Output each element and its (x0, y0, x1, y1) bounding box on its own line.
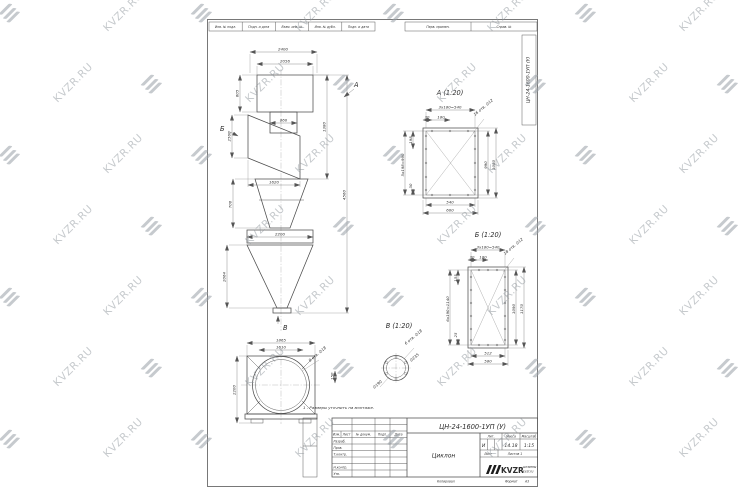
kvzr-watermark-text: KVZR.RU (101, 132, 145, 176)
view-v-dim-190: ∅190 (371, 379, 383, 390)
title-block: Изм. Лист № докум. Подп. Дата Разраб. Пр… (303, 418, 538, 483)
tb-sheets-label: Листов 1 (507, 452, 523, 456)
front-view-arrows: Б А В (220, 81, 359, 332)
kvzr-watermark-text: KVZR.RU (51, 203, 95, 247)
view-b-dim-25: 25 (453, 332, 458, 337)
tb-sheet-label: Лист (483, 452, 492, 456)
strip-cell-5: Подп. и дата (348, 25, 369, 29)
tb-format-label: Формат (505, 479, 518, 483)
kvzr-logo: KVZR (486, 465, 524, 475)
view-b-dim-155: 155 (453, 274, 458, 282)
view-a-dim-198: 198 (408, 136, 413, 144)
strip-cell-3: Взам. инв. № (281, 25, 302, 29)
strip-cell-4: Инв. № дубл. (315, 25, 336, 29)
kvzr-watermark-text: KVZR.RU (51, 345, 95, 389)
kvzr-watermark-logo (575, 3, 596, 24)
view-b-dim-512: 512 (484, 351, 492, 356)
cyclone-front-view (247, 69, 313, 331)
kvzr-watermark-text: KVZR.RU (677, 0, 721, 34)
tb-part-name: Циклон (432, 453, 456, 460)
dim-150: 150 (330, 372, 335, 380)
kvzr-watermark-logo (717, 216, 738, 237)
dim-2056: 2056 (280, 59, 290, 64)
kvzr-watermark-logo (575, 429, 596, 450)
tb-lit-value: И (482, 443, 486, 449)
tb-scale-label: Масштаб (522, 434, 537, 438)
kvzr-logo-text: KVZR (501, 466, 524, 475)
view-v-dim-235: ∅235 (408, 352, 420, 363)
view-a-dim-600: 600 (446, 208, 454, 213)
kvzr-watermark-logo (0, 287, 20, 308)
view-b-dim-left: 6х190=1140 (445, 296, 450, 322)
kvzr-watermark-logo (0, 145, 20, 166)
view-a-dim-top: 3х180=540 (439, 105, 462, 110)
tb-header-izm: Изм. (333, 433, 340, 437)
logo-caption-1: штампы (523, 465, 537, 469)
kvzr-watermark-text: KVZR.RU (101, 416, 145, 460)
view-a-dim-30l: 30 (408, 183, 413, 188)
tb-header-data: Дата (393, 433, 402, 437)
strip-cell-6: Перв. примен. (426, 25, 449, 29)
kvzr-watermark-text: KVZR.RU (627, 61, 671, 105)
logo-caption-2: kvzr.ru (523, 470, 533, 474)
view-b: Б (1:20) 3х180=540 30 180 18 отв. ∅12 10… (445, 231, 526, 366)
dim-2560: 2560 (227, 131, 232, 141)
strip-cell-1: Инв. № подл. (215, 25, 236, 29)
dim-2064: 2064 (222, 272, 227, 282)
tb-doc-number: ЦН-24-1600-1УП (У) (439, 423, 506, 431)
tb-copied-label: Копировал (437, 479, 455, 483)
tb-scale-value: 1:15 (524, 443, 534, 449)
kvzr-watermark-text: KVZR.RU (627, 203, 671, 247)
kvzr-watermark-logo (717, 358, 738, 379)
front-view-dimensions: 2400 2056 605 1380 860 2560 1620 700 220… (222, 47, 350, 314)
view-a-dim-540: 540 (446, 200, 454, 205)
side-doc-label: ЦН-24-1600-1УП (У) (522, 35, 536, 125)
dim-1380: 1380 (322, 122, 327, 132)
kvzr-watermark-logo (0, 429, 20, 450)
view-arrow-b-label: Б (220, 125, 225, 133)
drawing-note: 1 - Размеры уточнить на монтаже. (303, 405, 374, 410)
kvzr-watermark-text: KVZR.RU (627, 345, 671, 389)
kvzr-watermark-text: KVZR.RU (677, 416, 721, 460)
tb-row-razrab: Разраб. (334, 440, 346, 444)
tb-header-doc: № докум. (355, 433, 371, 437)
tb-lit-label: Лит. (486, 434, 494, 438)
tb-row-prov: Пров. (334, 446, 343, 450)
tb-row-utv: Утв. (334, 472, 341, 476)
dim-860: 860 (280, 118, 288, 123)
kvzr-watermark-text: KVZR.RU (677, 132, 721, 176)
dim-700: 700 (228, 200, 233, 208)
strip-cell-7: Справ. № (496, 25, 511, 29)
view-b-dim-580: 580 (484, 359, 492, 364)
kvzr-watermark-text: KVZR.RU (101, 274, 145, 318)
view-b-holes-callout: 18 отв. ∅12 (502, 236, 524, 256)
view-arrow-a-label: А (353, 81, 359, 89)
dim-2400: 2400 (278, 47, 288, 52)
view-b-dim-30t: 30 (470, 255, 475, 260)
view-b-dim-180: 180 (479, 255, 487, 260)
kvzr-watermark-logo (141, 358, 162, 379)
tb-mass-label: Масса (506, 434, 516, 438)
tb-mass-value: 14.18 (504, 443, 517, 449)
dim-2200-bottom: 2200 (232, 385, 237, 395)
kvzr-watermark-logo (141, 216, 162, 237)
kvzr-watermark-text: KVZR.RU (677, 274, 721, 318)
dim-1620: 1620 (269, 180, 279, 185)
dim-1865: 1865 (276, 338, 286, 343)
view-arrow-v-label: В (283, 324, 288, 332)
tb-row-nkontr: Н.контр. (334, 466, 348, 470)
dim-1610: 1610 (276, 345, 286, 350)
kvzr-watermark-logo (575, 145, 596, 166)
drawing-sheet: Инв. № подл. Подп. и дата Взам. инв. № И… (207, 19, 538, 487)
dim-4560: 4560 (342, 190, 347, 200)
view-a-dim-left: 5х198=990 (400, 153, 405, 176)
tb-header-list: Лист (342, 433, 351, 437)
kvzr-watermark-text: KVZR.RU (51, 61, 95, 105)
kvzr-watermark-text: KVZR.RU (101, 0, 145, 34)
kvzr-watermark-logo (0, 3, 20, 24)
view-a-title: А (1:20) (436, 89, 464, 97)
tb-row-tkontr: Т.контр. (334, 453, 347, 457)
view-b-title: Б (1:20) (475, 231, 502, 239)
view-b-dim-1090: 1090 (511, 304, 516, 314)
blueprint-page: KVZR.RUKVZR.RUKVZR.RUKVZR.RUKVZR.RUKVZR.… (0, 0, 750, 500)
view-a-dim-30t: 30 (425, 115, 430, 120)
tb-header-podp: Подп. (378, 433, 387, 437)
view-a-dim-180: 180 (437, 115, 445, 120)
view-v-title: В (1:20) (386, 322, 413, 330)
view-a: А (1:20) 3х180=540 30 180 16 отв. ∅12 99… (400, 89, 498, 215)
top-strip: Инв. № подл. Подп. и дата Взам. инв. № И… (209, 22, 537, 31)
dim-605: 605 (235, 89, 240, 97)
view-a-dim-1080: 1080 (491, 160, 496, 170)
dim-2200: 2200 (275, 232, 285, 237)
kvzr-watermark-logo (717, 74, 738, 95)
view-v: В (1:20) 6 отв. ∅18 ∅235 ∅190 (371, 322, 423, 390)
kvzr-watermark-logo (575, 287, 596, 308)
holes-callout-bottom: 8 отв. ∅18 (307, 345, 327, 363)
side-doc-label-text: ЦН-24-1600-1УП (У) (526, 57, 532, 104)
strip-cell-2: Подп. и дата (248, 25, 269, 29)
view-b-dim-top: 3х180=540 (477, 245, 500, 250)
view-v-holes-callout: 6 отв. ∅18 (403, 328, 423, 346)
tb-format-value: А3 (524, 479, 529, 483)
kvzr-watermark-logo (141, 74, 162, 95)
view-a-holes-callout: 16 отв. ∅12 (472, 97, 494, 117)
view-a-dim-990: 990 (483, 161, 488, 169)
view-b-dim-1170: 1170 (519, 304, 524, 314)
